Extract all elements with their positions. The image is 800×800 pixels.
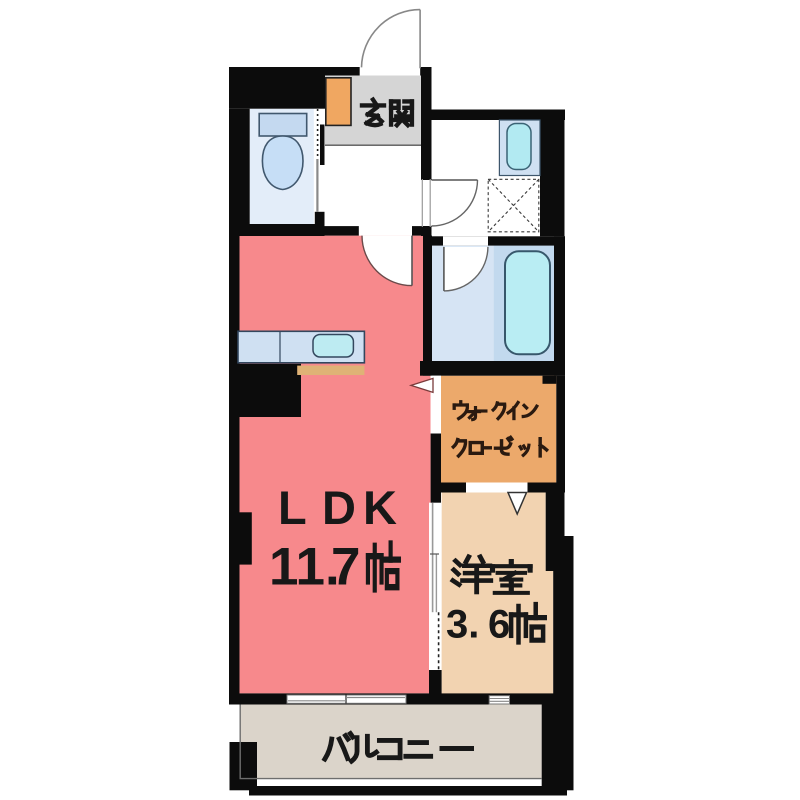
svg-text:L: L [278,481,307,534]
svg-text:D: D [322,481,356,534]
svg-text:K: K [363,481,397,534]
svg-text:3.: 3. [446,603,479,647]
svg-text:7: 7 [331,538,360,597]
svg-text:6: 6 [488,603,510,647]
svg-text:11.: 11. [269,538,340,597]
